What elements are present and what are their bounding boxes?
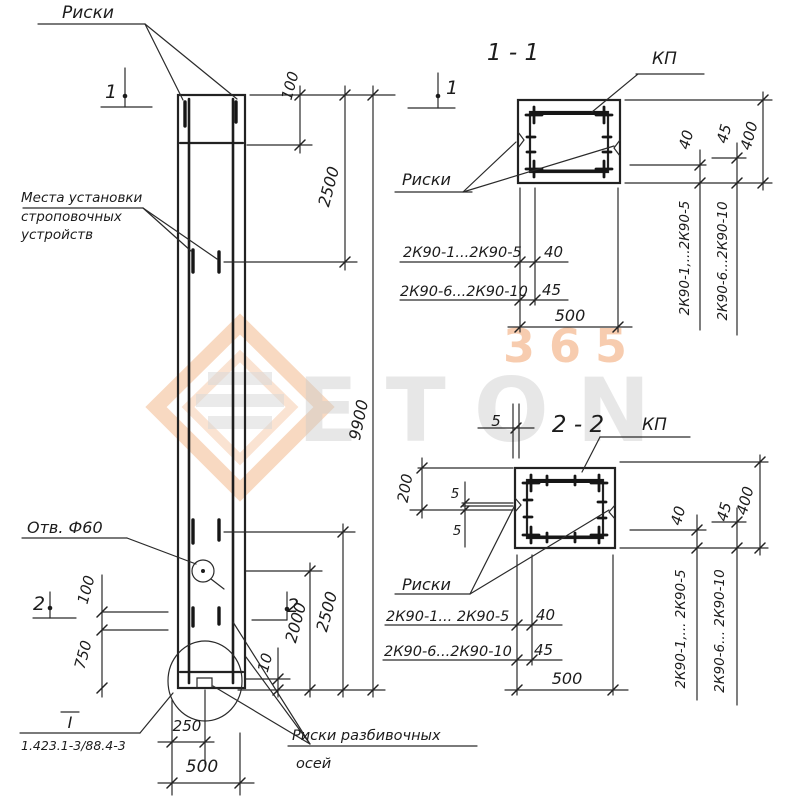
lifting-hole [192,560,224,589]
flag-digit-1-right: 1 [446,77,458,99]
label-riski-top: Риски [62,3,114,23]
rebar-lines [189,99,233,683]
section-1-1-dim-45: 45 [713,122,735,145]
dim-left-100: 100 [74,574,99,606]
flag-digit-1-left: 1 [105,81,117,103]
section-2-2-rot-label2: 2К90-6... 2К90-10 [712,569,728,692]
section-1-1-dim-40: 40 [675,128,697,151]
label-strop-line1: Места установки [21,190,143,206]
base-notch [197,678,212,688]
section-2-2-row1-value: 40 [536,606,555,624]
section-1-1-rot-label2: 2К90-6...2К90-10 [715,201,731,320]
drawing-canvas: 365 ETON [0,0,800,800]
section-1-1-riski-label: Риски [402,170,451,189]
dim-500: 500 [186,757,218,777]
section-1-1-row1-label: 2К90-1...2К90-5 [403,245,522,261]
label-ref-doc: 1.423.1-3/88.4-3 [21,738,126,753]
section-2-2-dim-400: 400 [733,485,758,517]
section-2-2-dim-5b: 5 [453,523,462,539]
dim-bottom-2000: 2000 [281,600,310,644]
label-hole: Отв. Ф60 [27,518,103,537]
section-2-2-riski-label: Риски [402,575,451,594]
label-strop-line2: строповочных [21,209,123,225]
dim-250: 250 [173,717,202,735]
section-2-2-row2-label: 2К90-6...2К90-10 [384,644,512,660]
label-razbiv-line2: осей [296,756,331,772]
dim-bottom-2500: 2500 [312,589,341,633]
section-2-2-row1-label: 2К90-1... 2К90-5 [386,609,509,625]
strop-marks-lower [193,520,219,543]
flag-digit-2-left: 2 [33,593,45,615]
dim-top-2500: 2500 [314,164,343,208]
section-2-2-kp-label: КП [642,415,667,435]
section-1-1-row2-value: 45 [542,281,561,299]
section-1-1-rot-label1: 2К90-1,...2К90-5 [677,201,693,316]
dim-bottom-10: 10 [254,651,276,674]
section-1-1-dim-400: 400 [737,120,762,152]
label-razbiv-line1: Риски разбивочных [292,728,441,744]
section-1-1-row2-label: 2К90-6...2К90-10 [400,284,528,300]
watermark: 365 ETON [156,319,678,491]
risk-marks-bottom [193,608,219,626]
section-1-1-row1-value: 40 [544,243,563,261]
watermark-logo-diamond-inner [188,356,292,459]
strop-marks-upper [193,250,219,272]
section-2-2-dim-5a: 5 [451,486,460,502]
section-2-2-dim-5-top: 5 [491,412,501,430]
drawing-sheet: 365 ETON [0,0,800,800]
section-2-2-row2-value: 45 [534,641,553,659]
section-2-2-dim-40: 40 [667,504,689,527]
dim-left-750: 750 [71,639,96,671]
section-1-1-title: 1 - 1 [487,40,539,66]
section-1-1-width-dim: 500 [555,306,586,325]
label-strop-line3: устройств [20,227,93,243]
section-flag-2-right [252,592,289,620]
watermark-logo-stripes [196,372,284,429]
risk-marks-top [185,102,236,126]
section-2-2-title: 2 - 2 [552,412,604,438]
section-2-2-width-dim: 500 [552,669,583,688]
section-2-2-rot-label1: 2К90-1,... 2К90-5 [673,569,689,688]
label-detail-roman: I [68,713,73,732]
section-1-1-kp-label: КП [652,49,677,69]
section-2-2-dim-200: 200 [394,472,417,503]
